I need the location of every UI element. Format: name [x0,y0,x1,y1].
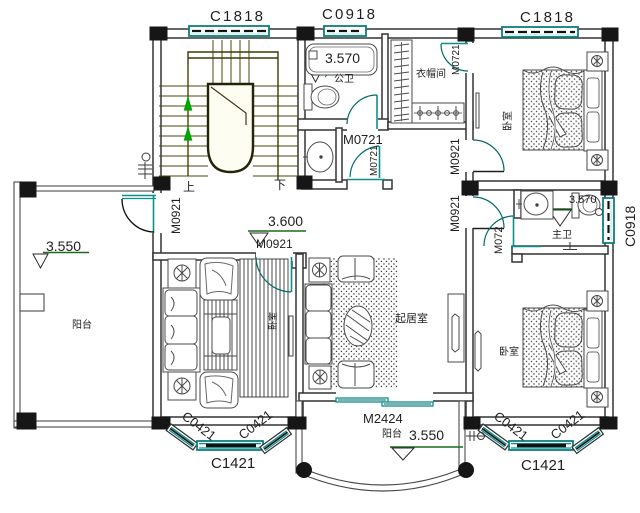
svg-text:M0921: M0921 [169,197,183,234]
svg-text:3.570: 3.570 [325,50,360,66]
svg-text:C0918: C0918 [622,206,638,247]
svg-text:M0921: M0921 [256,237,293,251]
svg-text:M072: M072 [493,226,505,254]
svg-text:3.550: 3.550 [409,427,444,443]
svg-text:M2424: M2424 [363,411,403,426]
svg-text:起居室: 起居室 [395,311,428,325]
svg-text:M0721: M0721 [369,145,380,176]
svg-text:M0721: M0721 [343,132,383,147]
svg-text:C1818: C1818 [520,9,575,26]
svg-text:上: 上 [183,180,195,194]
svg-text:M0721: M0721 [451,44,462,75]
svg-text:卧室: 卧室 [501,111,514,131]
svg-text:主卫: 主卫 [552,229,572,241]
svg-text:阳台: 阳台 [72,318,92,331]
svg-text:3.600: 3.600 [268,213,303,229]
svg-text:C1421: C1421 [521,457,565,474]
svg-text:公卫: 公卫 [334,74,354,85]
svg-text:下: 下 [274,178,286,192]
svg-text:M0921: M0921 [448,195,462,232]
svg-text:3.570: 3.570 [569,194,597,206]
svg-text:卧室: 卧室 [499,345,519,358]
svg-text:阳台: 阳台 [382,427,402,440]
svg-text:衣帽间: 衣帽间 [416,67,446,80]
svg-text:C0918: C0918 [322,6,377,23]
svg-text:C1818: C1818 [210,8,265,25]
svg-text:M0921: M0921 [448,138,462,175]
svg-text:C1421: C1421 [211,455,255,472]
svg-text:3.550: 3.550 [46,238,81,254]
svg-text:卧室: 卧室 [267,312,278,330]
